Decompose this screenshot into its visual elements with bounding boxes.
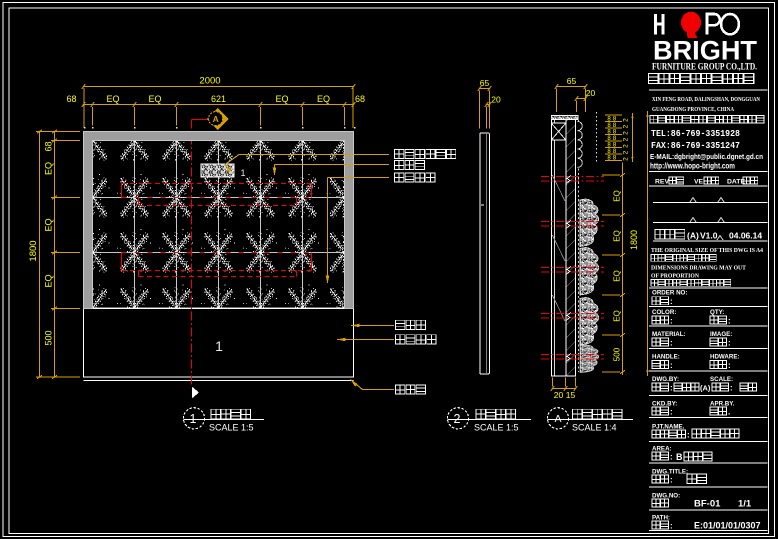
svg-text:B: B — [676, 452, 683, 462]
svg-text:500: 500 — [44, 330, 54, 345]
svg-text:DWG.NO:: DWG.NO: — [652, 493, 680, 500]
svg-text::: : — [728, 317, 731, 326]
svg-text:2: 2 — [623, 118, 630, 122]
svg-text:THE ORIGINAL SIZE OF THIS DWG: THE ORIGINAL SIZE OF THIS DWG IS A4 — [651, 247, 764, 254]
svg-text:EQ: EQ — [317, 94, 330, 104]
svg-text:2: 2 — [623, 150, 630, 154]
svg-text:EQ: EQ — [148, 94, 161, 104]
svg-text:VE: VE — [694, 179, 704, 186]
svg-text:(A): (A) — [687, 231, 699, 241]
svg-text:http://www.hopo-bright.com: http://www.hopo-bright.com — [650, 161, 735, 170]
svg-text:HANDLE:: HANDLE: — [652, 354, 680, 361]
svg-text::: : — [670, 453, 673, 462]
svg-text:2: 2 — [623, 137, 630, 141]
svg-text:DIMENSIONS DRAWING MAY OUT: DIMENSIONS DRAWING MAY OUT — [651, 264, 747, 271]
svg-text:EQ: EQ — [106, 94, 119, 104]
svg-text:2000: 2000 — [199, 76, 220, 87]
svg-text:TEL:86-769-3351928: TEL:86-769-3351928 — [651, 128, 740, 139]
svg-text::: : — [730, 384, 733, 393]
svg-text::: : — [670, 297, 673, 306]
svg-text:500: 500 — [613, 347, 622, 361]
svg-text::: : — [687, 431, 690, 440]
svg-text:GUANGDONG PROVINCE, CHINA: GUANGDONG PROVINCE, CHINA — [652, 106, 734, 113]
svg-text:2: 2 — [623, 144, 630, 148]
svg-text:20: 20 — [554, 390, 564, 400]
svg-text:.: . — [728, 408, 730, 417]
svg-text:EQ: EQ — [44, 274, 54, 287]
svg-text:ORDER NO:: ORDER NO: — [652, 290, 687, 297]
svg-text:V1.0: V1.0 — [700, 231, 718, 241]
svg-text:EQ: EQ — [613, 230, 622, 242]
svg-text:QTY:: QTY: — [710, 309, 724, 316]
svg-text:1800: 1800 — [28, 240, 39, 261]
svg-text:20: 20 — [491, 95, 501, 105]
svg-text::: : — [728, 361, 731, 370]
svg-text:BF-01: BF-01 — [694, 499, 721, 510]
svg-text:EQ: EQ — [613, 310, 622, 322]
svg-text::: : — [670, 384, 673, 393]
svg-text:68: 68 — [66, 94, 76, 104]
svg-text:EQ: EQ — [613, 190, 622, 202]
svg-text:1: 1 — [240, 168, 245, 178]
svg-text:XIN FENG ROAD, DALINGSHAN, DON: XIN FENG ROAD, DALINGSHAN, DONGGUAN — [652, 96, 760, 103]
svg-text::: : — [728, 339, 731, 348]
svg-text:20: 20 — [586, 88, 596, 98]
svg-text:PATH:: PATH: — [652, 515, 670, 522]
svg-text:1800: 1800 — [629, 230, 639, 250]
svg-text:04.06.14: 04.06.14 — [729, 231, 762, 241]
svg-text:FAX:86-769-3351247: FAX:86-769-3351247 — [651, 140, 740, 151]
svg-text:HDWARE:: HDWARE: — [710, 354, 740, 361]
svg-text::: : — [670, 339, 673, 348]
svg-text:68: 68 — [355, 94, 365, 104]
svg-text:E:01/01/01/0307: E:01/01/01/0307 — [694, 521, 761, 531]
svg-text:PJT.NAME.: PJT.NAME. — [652, 424, 685, 431]
svg-text:EQ: EQ — [613, 270, 622, 282]
svg-text:SCALE 1:4: SCALE 1:4 — [572, 423, 617, 433]
svg-text::: : — [670, 361, 673, 370]
svg-text:68: 68 — [44, 141, 54, 151]
svg-text:SCALE:: SCALE: — [710, 376, 733, 383]
svg-text:65: 65 — [480, 78, 490, 88]
svg-text:(A): (A) — [700, 384, 711, 393]
svg-text:1/1: 1/1 — [738, 499, 752, 510]
svg-text:EQ: EQ — [275, 94, 288, 104]
svg-text:FURNITURE GROUP CO.,LTD.: FURNITURE GROUP CO.,LTD. — [652, 62, 757, 72]
svg-text::: : — [670, 408, 673, 417]
svg-text:OF PROPORTION: OF PROPORTION — [651, 273, 699, 280]
svg-text:DWG.TITLE:: DWG.TITLE: — [652, 469, 688, 476]
svg-text:CKD.BY:: CKD.BY: — [652, 401, 677, 408]
svg-text:A: A — [213, 114, 219, 124]
svg-text:AREA:: AREA: — [652, 446, 672, 453]
svg-text:COLOR:: COLOR: — [652, 309, 676, 316]
svg-text:E-MAIL:dgbright@public.dgnet.g: E-MAIL:dgbright@public.dgnet.gd.cn — [650, 152, 763, 161]
svg-text:15: 15 — [566, 390, 576, 400]
svg-text:MATERIAL:: MATERIAL: — [652, 331, 686, 338]
svg-text:APR.BY.: APR.BY. — [710, 401, 735, 408]
svg-text::: : — [670, 476, 673, 485]
svg-text:EQ: EQ — [44, 162, 54, 175]
svg-text:2: 2 — [623, 124, 630, 128]
svg-text:1: 1 — [215, 338, 223, 354]
svg-text:621: 621 — [211, 94, 226, 104]
svg-text:SCALE 1:5: SCALE 1:5 — [474, 423, 519, 433]
svg-text:65: 65 — [567, 76, 577, 86]
svg-text::: : — [670, 522, 673, 531]
svg-text::: : — [670, 317, 673, 326]
svg-text:EQ: EQ — [44, 218, 54, 231]
svg-text:REV: REV — [655, 179, 669, 186]
svg-text:SCALE 1:5: SCALE 1:5 — [209, 423, 254, 433]
svg-text:IMAGE:: IMAGE: — [710, 331, 732, 338]
svg-text:2: 2 — [623, 157, 630, 161]
svg-text:DWG.BY:: DWG.BY: — [652, 376, 679, 383]
svg-text:2: 2 — [623, 131, 630, 135]
